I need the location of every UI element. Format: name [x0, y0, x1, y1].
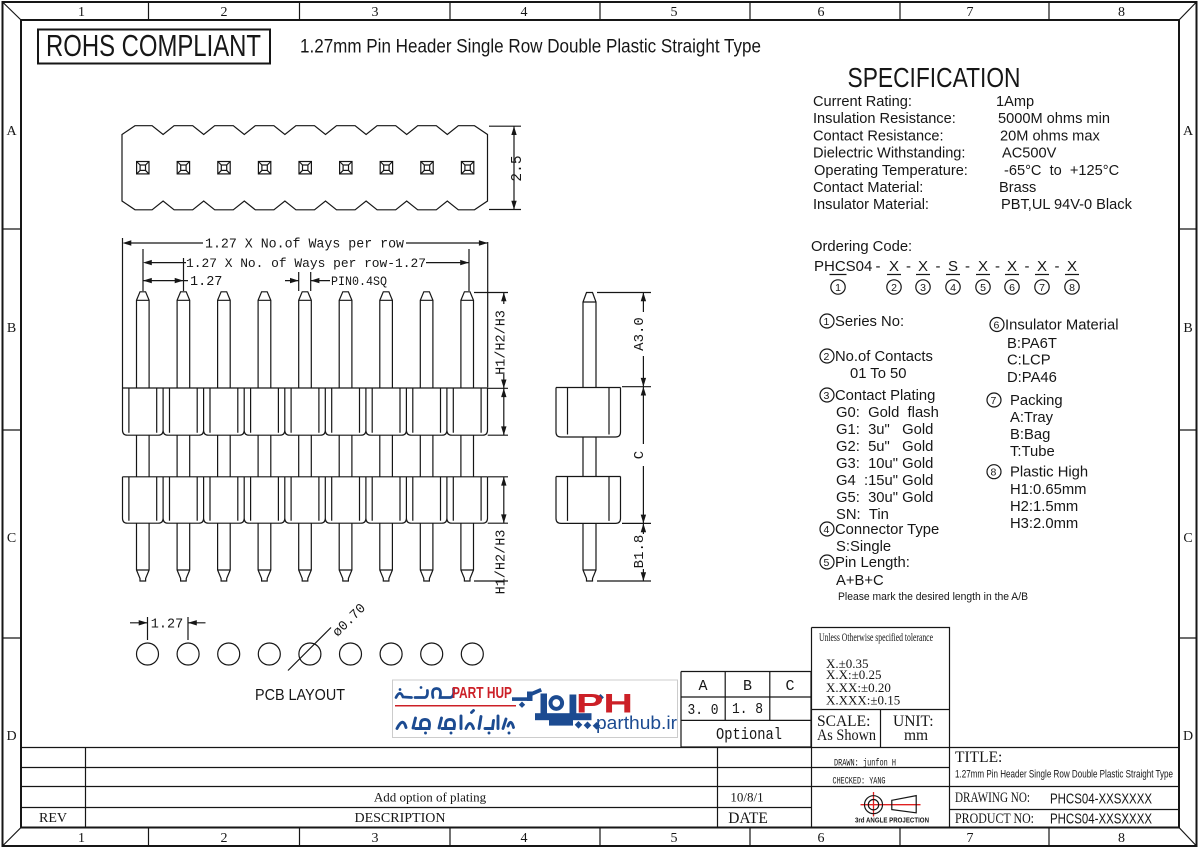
svg-text:C:LCP: C:LCP [1007, 353, 1051, 369]
svg-text:4: 4 [824, 524, 830, 536]
svg-text:Dielectric Withstanding:: Dielectric Withstanding: [813, 146, 965, 162]
svg-text:Contact Plating: Contact Plating [835, 388, 935, 404]
svg-text:Brass: Brass [999, 180, 1036, 196]
svg-text:PBT,UL 94V-0 Black: PBT,UL 94V-0 Black [1001, 197, 1133, 213]
svg-text:X: X [918, 258, 928, 275]
svg-text:B: B [7, 321, 16, 336]
svg-text:A+B+C: A+B+C [836, 573, 884, 589]
svg-text:7: 7 [967, 831, 974, 846]
svg-text:B: B [743, 678, 752, 695]
svg-text:1: 1 [78, 831, 85, 846]
svg-text:7: 7 [991, 395, 997, 407]
svg-text:D:PA46: D:PA46 [1007, 370, 1057, 386]
svg-text:6: 6 [994, 320, 1000, 332]
svg-text:SN: Tin: SN: Tin [836, 507, 889, 523]
svg-text:X: X [889, 258, 899, 275]
svg-text:1.27mm Pin Header Single Row D: 1.27mm Pin Header Single Row Double Plas… [955, 769, 1173, 781]
svg-text:G4 :15u" Gold: G4 :15u" Gold [836, 473, 933, 489]
svg-text:C: C [1183, 531, 1192, 546]
svg-text:7: 7 [1039, 282, 1045, 294]
svg-text:2: 2 [824, 351, 830, 363]
svg-text:S: S [948, 258, 958, 275]
svg-text:-: - [936, 258, 941, 275]
svg-text:C: C [785, 678, 794, 695]
svg-text:8: 8 [991, 467, 997, 479]
svg-text:X: X [1037, 258, 1047, 275]
svg-text:PHCS04-XXSXXXX: PHCS04-XXSXXXX [1050, 811, 1152, 828]
svg-text:D: D [1183, 729, 1193, 744]
svg-text:mm: mm [904, 727, 928, 744]
svg-text:H2:1.5mm: H2:1.5mm [1010, 499, 1078, 515]
svg-text:3: 3 [372, 831, 379, 846]
svg-text:DESCRIPTION: DESCRIPTION [354, 811, 445, 826]
svg-text:A:Tray: A:Tray [1010, 410, 1054, 426]
svg-text:Ordering Code:: Ordering Code: [811, 239, 912, 255]
svg-text:-65°C to +125°C: -65°C to +125°C [1004, 163, 1119, 179]
svg-text:-: - [995, 258, 1000, 275]
svg-text:3. 0: 3. 0 [688, 702, 719, 719]
svg-text:H3:2.0mm: H3:2.0mm [1010, 516, 1078, 532]
svg-text:G5: 30u" Gold: G5: 30u" Gold [836, 490, 933, 506]
svg-text:01 To 50: 01 To 50 [850, 366, 907, 382]
svg-text:3: 3 [372, 5, 379, 20]
svg-text:5: 5 [824, 557, 830, 569]
svg-text:PCB LAYOUT: PCB LAYOUT [255, 687, 345, 704]
svg-text:A: A [698, 678, 707, 695]
svg-text:X.XXX:±0.15: X.XXX:±0.15 [826, 693, 900, 708]
svg-text:3: 3 [920, 282, 926, 294]
svg-text:3: 3 [824, 390, 830, 402]
svg-text:Please mark the desired length: Please mark the desired length in the A/… [838, 591, 1028, 603]
svg-text:Optional: Optional [716, 726, 782, 745]
svg-text:TITLE:: TITLE: [955, 749, 1002, 766]
svg-text:Unless Otherwise specified tol: Unless Otherwise specified tolerance [819, 632, 933, 644]
svg-text:1.27: 1.27 [151, 617, 183, 632]
svg-text:SPECIFICATION: SPECIFICATION [848, 62, 1021, 93]
svg-text:H1/H2/H3: H1/H2/H3 [495, 530, 510, 595]
svg-text:Insulator Material: Insulator Material [1005, 318, 1119, 334]
svg-text:2: 2 [221, 5, 228, 20]
svg-text:CHECKED: YANG: CHECKED: YANG [833, 776, 886, 788]
svg-text:G0: Gold flash: G0: Gold flash [836, 405, 939, 421]
svg-text:A: A [6, 124, 17, 139]
svg-text:Packing: Packing [1010, 393, 1063, 409]
svg-text:Operating Temperature:: Operating Temperature: [814, 163, 968, 179]
svg-text:8: 8 [1118, 831, 1125, 846]
svg-text:A3.0: A3.0 [632, 317, 648, 351]
svg-text:B:Bag: B:Bag [1010, 427, 1050, 443]
svg-text:DRAWN: junfon H: DRAWN: junfon H [834, 758, 896, 770]
svg-text:7: 7 [967, 5, 974, 20]
svg-text:B: B [1183, 321, 1192, 336]
svg-text:1: 1 [835, 282, 841, 294]
svg-text:B1.8: B1.8 [632, 535, 648, 569]
svg-text:PHCS04-XXSXXXX: PHCS04-XXSXXXX [1050, 791, 1152, 808]
svg-text:Add option of plating: Add option of plating [374, 790, 487, 805]
svg-text:2: 2 [221, 831, 228, 846]
svg-text:1.27 X No. of Ways per row-1.2: 1.27 X No. of Ways per row-1.27 [186, 256, 426, 271]
svg-text:T:Tube: T:Tube [1010, 444, 1055, 460]
svg-text:H1/H2/H3: H1/H2/H3 [495, 310, 510, 375]
svg-text:parthub.ir: parthub.ir [596, 713, 677, 733]
svg-text:10/8/1: 10/8/1 [730, 790, 763, 805]
svg-text:1: 1 [824, 316, 830, 328]
svg-text:B:PA6T: B:PA6T [1007, 336, 1057, 352]
svg-text:5: 5 [671, 831, 678, 846]
svg-text:Current Rating:: Current Rating: [813, 94, 912, 110]
svg-text:-: - [965, 258, 970, 275]
svg-text:Insulation Resistance:: Insulation Resistance: [813, 111, 956, 127]
svg-text:A: A [1183, 124, 1194, 139]
svg-text:AC500V: AC500V [1002, 146, 1057, 162]
svg-text:C: C [7, 531, 16, 546]
svg-text:PRODUCT NO:: PRODUCT NO: [955, 811, 1034, 827]
svg-text:S:Single: S:Single [836, 539, 891, 555]
svg-text:-: - [876, 258, 881, 275]
svg-text:-: - [1025, 258, 1030, 275]
svg-text:3rd ANGLE PROJECTION: 3rd ANGLE PROJECTION [855, 816, 929, 825]
svg-text:1.27 X No.of Ways per row: 1.27 X No.of Ways per row [205, 238, 404, 253]
svg-text:1Amp: 1Amp [996, 94, 1034, 110]
svg-text:H1:0.65mm: H1:0.65mm [1010, 482, 1086, 498]
svg-text:DRAWING NO:: DRAWING NO: [955, 790, 1030, 806]
svg-text:G1: 3u" Gold: G1: 3u" Gold [836, 422, 933, 438]
svg-text:5: 5 [671, 5, 678, 20]
svg-text:Insulator Material:: Insulator Material: [813, 197, 929, 213]
svg-text:Pin Length:: Pin Length: [835, 555, 910, 571]
svg-text:D: D [6, 729, 16, 744]
svg-text:Plastic High: Plastic High [1010, 465, 1088, 481]
svg-text:4: 4 [521, 5, 528, 20]
svg-text:Series No:: Series No: [835, 314, 904, 330]
svg-text:4: 4 [950, 282, 956, 294]
svg-text:C: C [632, 451, 648, 459]
svg-text:6: 6 [818, 831, 825, 846]
svg-text:8: 8 [1118, 5, 1125, 20]
svg-text:-: - [1055, 258, 1060, 275]
svg-text:1.27mm Pin Header Single Row D: 1.27mm Pin Header Single Row Double Plas… [300, 36, 761, 58]
svg-text:-: - [906, 258, 911, 275]
svg-text:Contact Material:: Contact Material: [813, 180, 923, 196]
svg-text:Connector Type: Connector Type [835, 522, 939, 538]
svg-text:G2: 5u" Gold: G2: 5u" Gold [836, 439, 933, 455]
svg-text:REV: REV [39, 811, 67, 826]
svg-text:PART HUP: PART HUP [452, 685, 512, 702]
svg-text:4: 4 [521, 831, 528, 846]
svg-text:1: 1 [78, 5, 85, 20]
svg-text:PIN0.4SQ: PIN0.4SQ [331, 275, 387, 289]
svg-text:Contact Resistance:: Contact Resistance: [813, 128, 944, 144]
svg-text:6: 6 [818, 5, 825, 20]
svg-text:6: 6 [1009, 282, 1015, 294]
svg-text:G3: 10u" Gold: G3: 10u" Gold [836, 456, 933, 472]
svg-text:ROHS COMPLIANT: ROHS COMPLIANT [46, 28, 261, 63]
svg-text:X: X [978, 258, 988, 275]
svg-text:X: X [1067, 258, 1077, 275]
svg-text:1. 8: 1. 8 [732, 701, 763, 718]
svg-text:5: 5 [980, 282, 986, 294]
svg-text:X: X [1007, 258, 1017, 275]
svg-text:PHCS04: PHCS04 [814, 258, 872, 275]
svg-text:As Shown: As Shown [817, 727, 876, 744]
svg-text:DATE: DATE [728, 810, 768, 827]
svg-text:No.of Contacts: No.of Contacts [835, 349, 933, 365]
svg-text:20M ohms max: 20M ohms max [1000, 128, 1100, 144]
svg-text:2.5: 2.5 [510, 155, 526, 181]
svg-text:1.27: 1.27 [190, 275, 222, 290]
svg-text:2: 2 [891, 282, 897, 294]
svg-text:8: 8 [1069, 282, 1075, 294]
svg-text:5000M ohms min: 5000M ohms min [998, 111, 1110, 127]
